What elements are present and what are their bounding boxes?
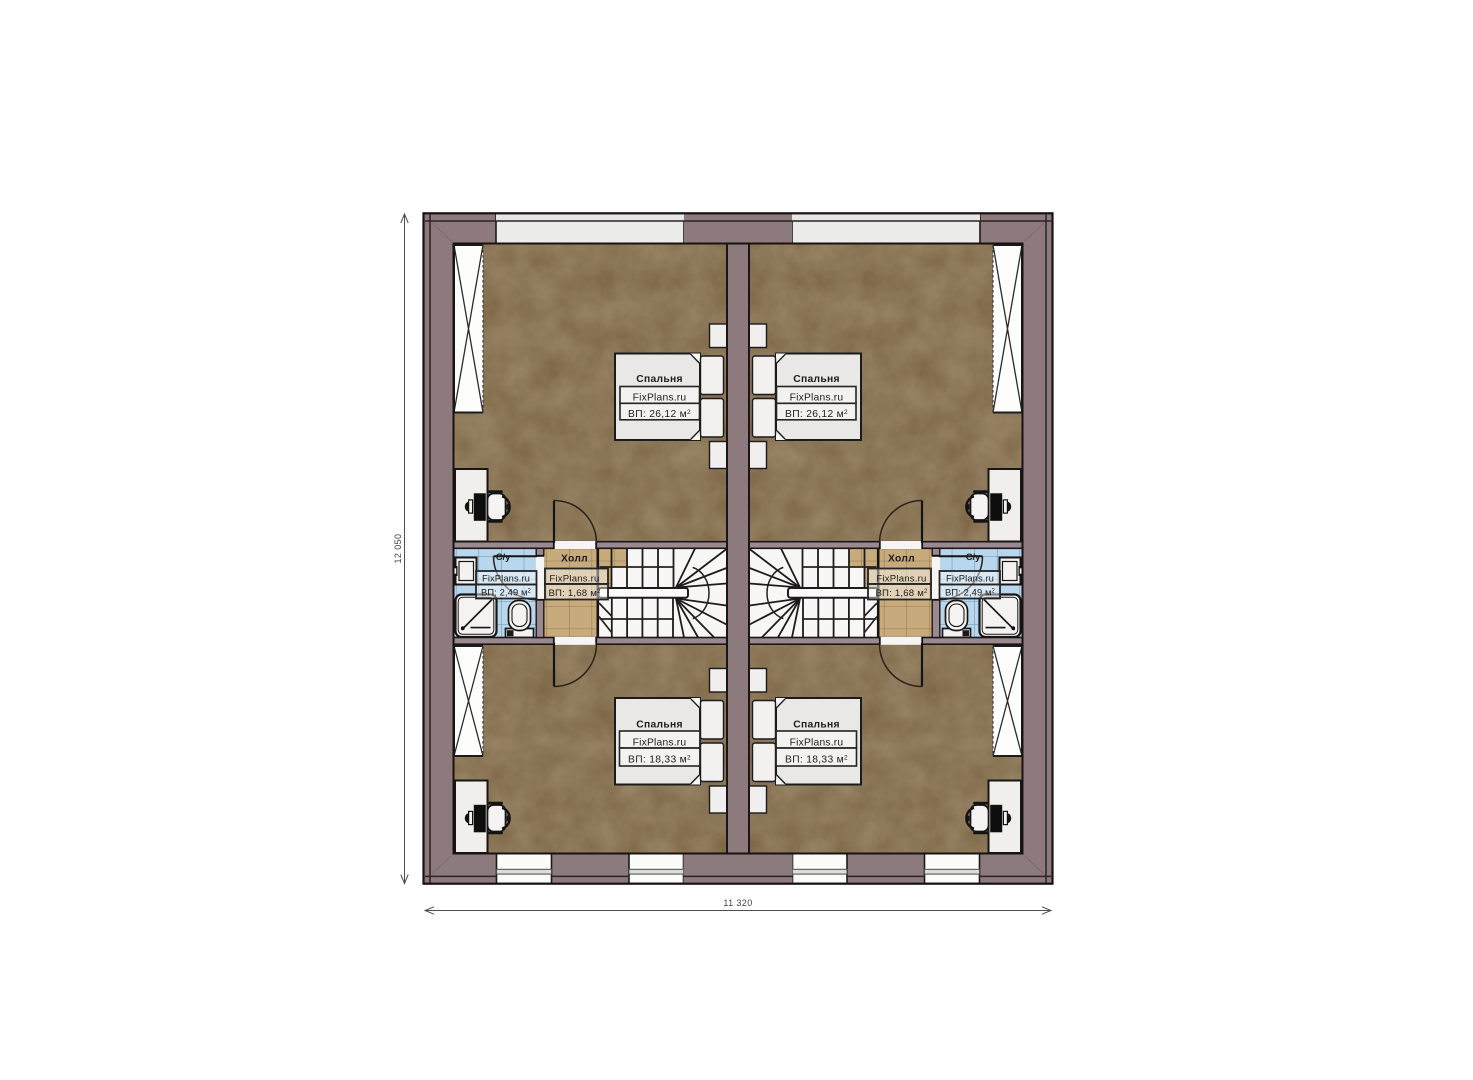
svg-text:Холл: Холл	[888, 554, 915, 565]
svg-text:Спальня: Спальня	[636, 374, 683, 385]
svg-text:FixPlans.ru: FixPlans.ru	[790, 737, 844, 748]
svg-text:ВП: 26,12 м2: ВП: 26,12 м2	[628, 409, 691, 420]
svg-text:FixPlans.ru: FixPlans.ru	[633, 737, 687, 748]
svg-text:С/у: С/у	[496, 551, 511, 562]
svg-text:FixPlans.ru: FixPlans.ru	[633, 393, 687, 404]
svg-text:ВП: 1,68 м2: ВП: 1,68 м2	[548, 588, 601, 599]
svg-text:ВП: 26,12 м2: ВП: 26,12 м2	[785, 409, 848, 420]
svg-text:ВП: 18,33 м2: ВП: 18,33 м2	[628, 755, 691, 766]
svg-text:FixPlans.ru: FixPlans.ru	[790, 393, 844, 404]
svg-text:ВП: 1,68 м2: ВП: 1,68 м2	[875, 588, 928, 599]
svg-text:Холл: Холл	[561, 554, 588, 565]
svg-text:Спальня: Спальня	[793, 374, 840, 385]
svg-text:FixPlans.ru: FixPlans.ru	[876, 573, 926, 584]
svg-text:FixPlans.ru: FixPlans.ru	[946, 573, 994, 584]
svg-text:Спальня: Спальня	[636, 720, 683, 731]
svg-text:FixPlans.ru: FixPlans.ru	[549, 573, 599, 584]
svg-text:FixPlans.ru: FixPlans.ru	[482, 573, 530, 584]
svg-text:С/у: С/у	[966, 551, 981, 562]
svg-text:ВП: 2,49 м2: ВП: 2,49 м2	[945, 586, 996, 597]
svg-text:ВП: 2,49 м2: ВП: 2,49 м2	[481, 586, 532, 597]
svg-text:Спальня: Спальня	[793, 720, 840, 731]
svg-text:ВП: 18,33 м2: ВП: 18,33 м2	[785, 755, 848, 766]
svg-text:12 050: 12 050	[393, 534, 403, 564]
svg-text:11 320: 11 320	[723, 898, 752, 908]
